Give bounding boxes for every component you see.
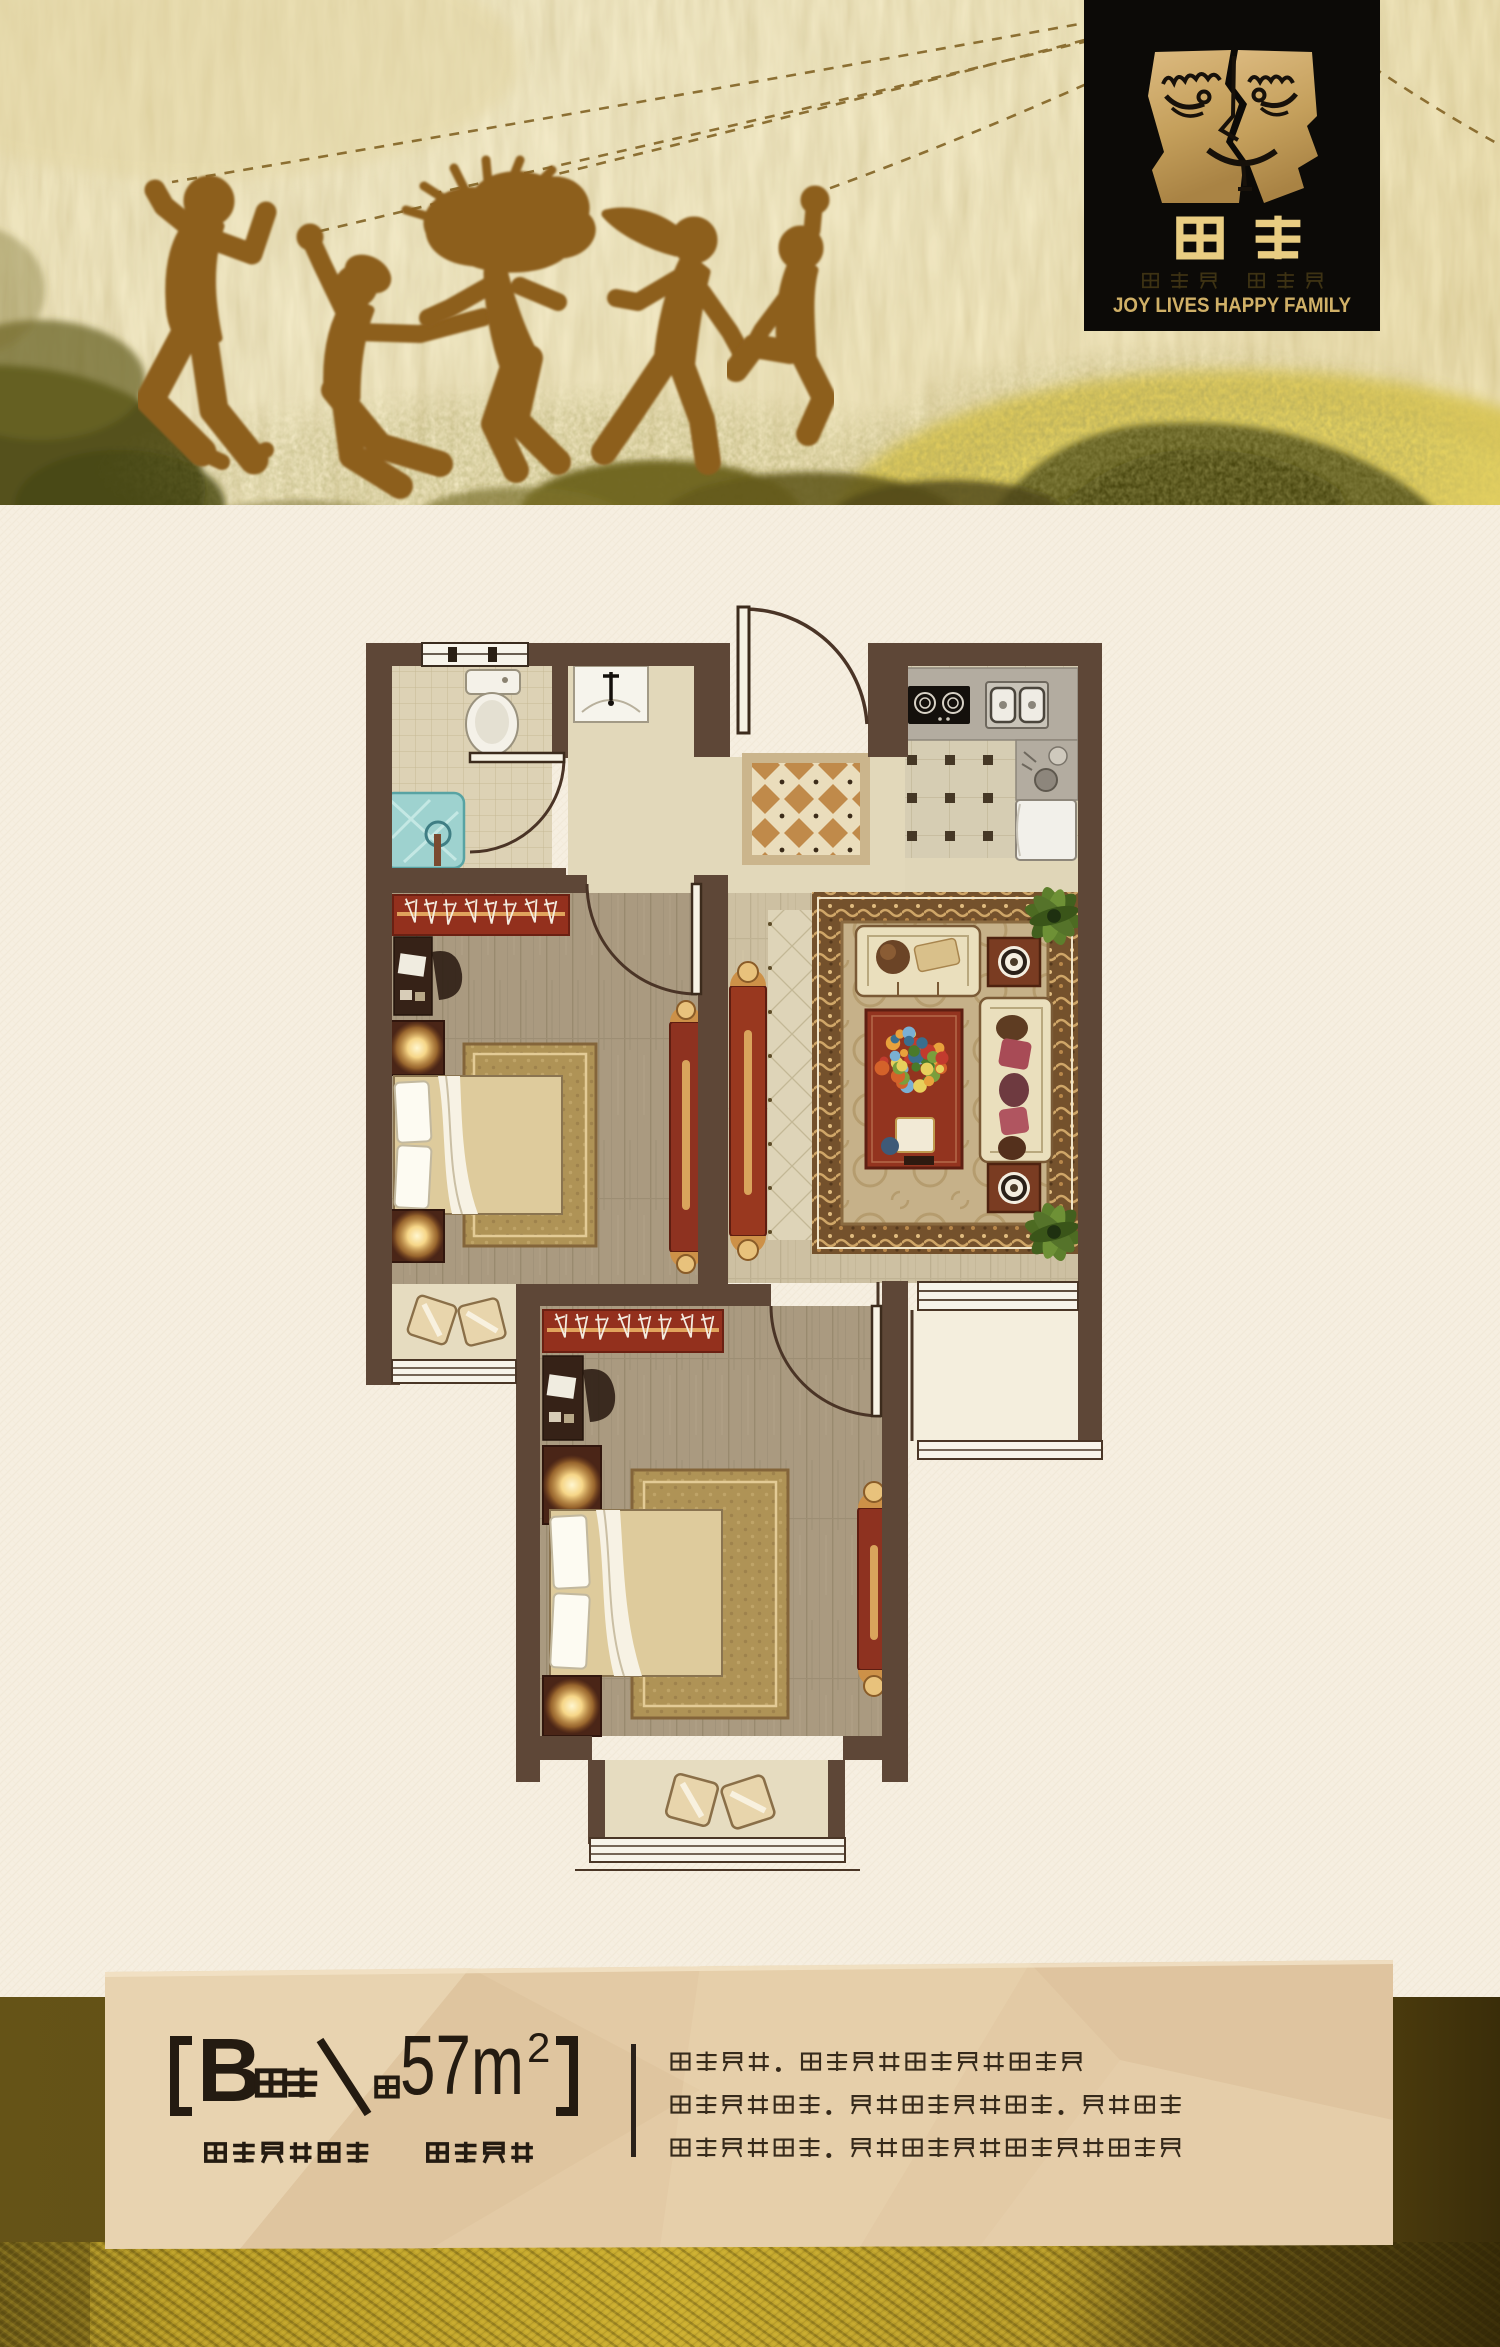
svg-text:B: B <box>197 2021 262 2121</box>
svg-text:2: 2 <box>527 2024 550 2071</box>
svg-text:JOY LIVES HAPPY FAMILY: JOY LIVES HAPPY FAMILY <box>1113 294 1351 317</box>
svg-text:57m: 57m <box>400 2018 524 2112</box>
